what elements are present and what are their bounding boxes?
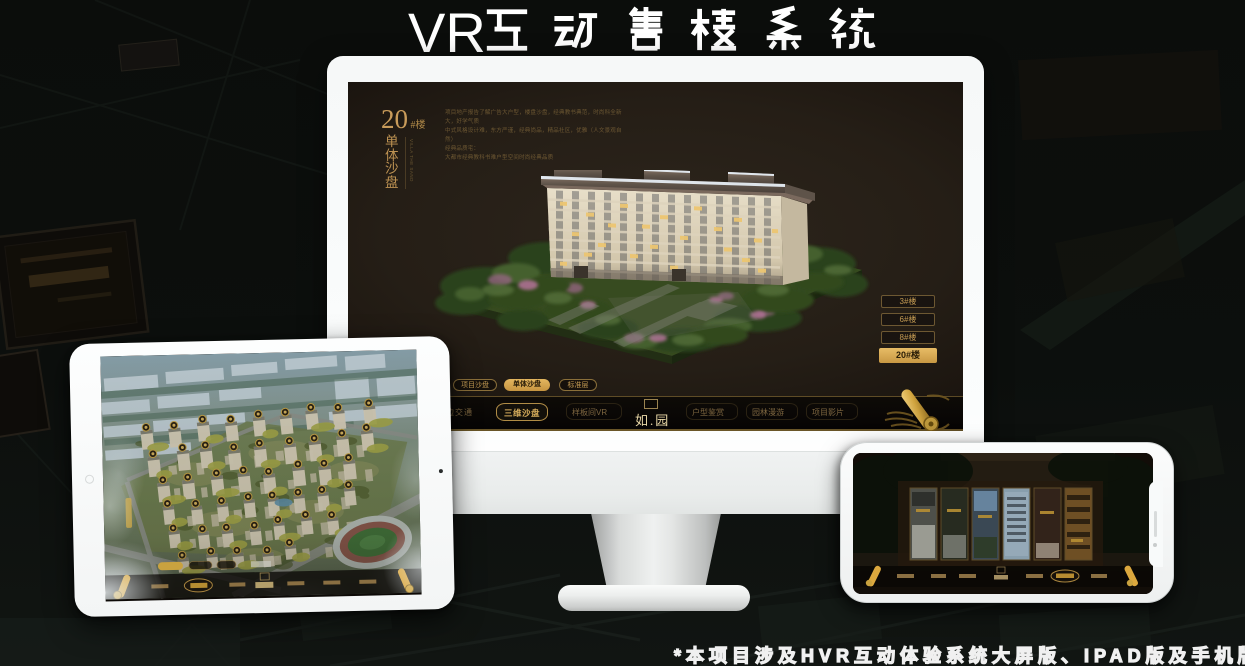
svg-text:VR: VR bbox=[408, 3, 486, 57]
